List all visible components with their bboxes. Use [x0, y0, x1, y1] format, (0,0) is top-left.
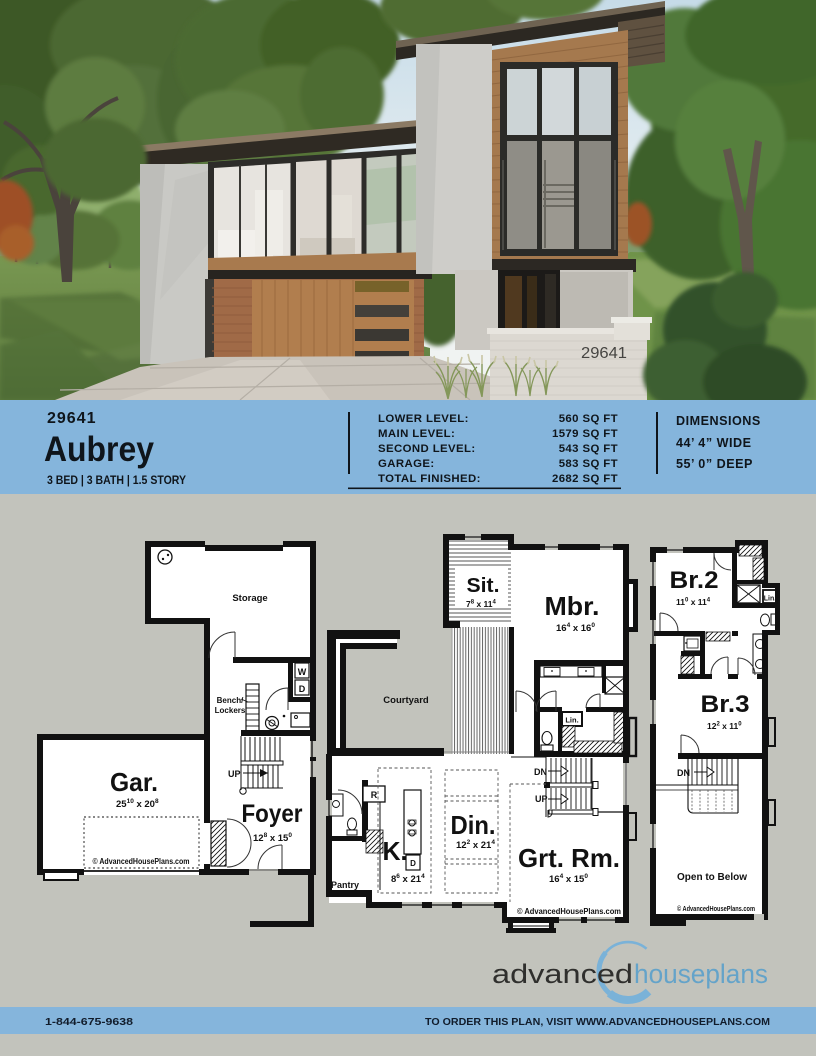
- svg-text:Lockers: Lockers: [215, 706, 246, 715]
- svg-text:Sit.: Sit.: [467, 575, 500, 597]
- svg-text:Storage: Storage: [232, 593, 267, 604]
- svg-text:2682 SQ FT: 2682 SQ FT: [552, 473, 618, 485]
- svg-text:Pantry: Pantry: [331, 880, 359, 890]
- svg-text:Mbr.: Mbr.: [545, 591, 600, 621]
- svg-text:TO ORDER THIS PLAN, VISIT WWW.: TO ORDER THIS PLAN, VISIT WWW.ADVANCEDHO…: [425, 1016, 770, 1028]
- svg-text:Grt. Rm.: Grt. Rm.: [518, 843, 620, 873]
- svg-text:543 SQ FT: 543 SQ FT: [559, 443, 618, 455]
- svg-text:Br.2: Br.2: [670, 567, 719, 594]
- svg-text:© AdvancedHousePlans.com: © AdvancedHousePlans.com: [677, 905, 755, 913]
- svg-text:86 x 214: 86 x 214: [391, 873, 425, 885]
- svg-text:Open to Below: Open to Below: [677, 872, 747, 883]
- svg-text:© AdvancedHousePlans.com: © AdvancedHousePlans.com: [517, 907, 621, 916]
- svg-text:3 BED | 3 BATH | 1.5 STORY: 3 BED | 3 BATH | 1.5 STORY: [47, 473, 186, 487]
- svg-text:GARAGE:: GARAGE:: [378, 458, 435, 470]
- svg-text:© AdvancedHousePlans.com: © AdvancedHousePlans.com: [93, 857, 190, 866]
- svg-text:Din.: Din.: [451, 810, 496, 840]
- svg-text:D: D: [410, 859, 416, 868]
- svg-text:128 x 150: 128 x 150: [253, 832, 292, 844]
- svg-text:W: W: [298, 667, 307, 677]
- svg-text:K.: K.: [383, 836, 408, 866]
- svg-text:Gar.: Gar.: [110, 767, 158, 797]
- svg-text:Lin.: Lin.: [764, 596, 776, 603]
- svg-text:Foyer: Foyer: [242, 800, 303, 828]
- svg-text:UP: UP: [228, 769, 241, 779]
- svg-text:1-844-675-9638: 1-844-675-9638: [45, 1016, 133, 1028]
- svg-text:SECOND LEVEL:: SECOND LEVEL:: [378, 443, 476, 455]
- svg-text:110 x 114: 110 x 114: [676, 597, 711, 607]
- svg-text:UP: UP: [535, 794, 548, 804]
- svg-text:R: R: [371, 790, 378, 800]
- svg-text:DN: DN: [677, 768, 690, 778]
- svg-text:Aubrey: Aubrey: [44, 430, 154, 469]
- svg-text:164 x 150: 164 x 150: [549, 873, 588, 885]
- svg-text:Courtyard: Courtyard: [383, 695, 429, 706]
- svg-text:Lin.: Lin.: [565, 716, 578, 725]
- svg-text:TOTAL FINISHED:: TOTAL FINISHED:: [378, 473, 481, 485]
- svg-text:2510 x 208: 2510 x 208: [116, 798, 159, 810]
- svg-text:122 x 214: 122 x 214: [456, 839, 495, 851]
- svg-text:583 SQ FT: 583 SQ FT: [559, 458, 618, 470]
- svg-text:LOWER LEVEL:: LOWER LEVEL:: [378, 413, 469, 425]
- svg-text:44’ 4” WIDE: 44’ 4” WIDE: [676, 436, 752, 450]
- svg-text:78 x 114: 78 x 114: [466, 599, 497, 609]
- svg-text:55’ 0” DEEP: 55’ 0” DEEP: [676, 457, 753, 471]
- svg-text:560 SQ FT: 560 SQ FT: [559, 413, 618, 425]
- svg-text:MAIN LEVEL:: MAIN LEVEL:: [378, 428, 455, 440]
- svg-text:DN: DN: [534, 767, 547, 777]
- svg-text:164 x 160: 164 x 160: [556, 622, 595, 634]
- svg-text:122 x 110: 122 x 110: [707, 721, 742, 731]
- svg-text:Br.3: Br.3: [701, 691, 750, 718]
- svg-text:29641: 29641: [581, 345, 627, 362]
- svg-text:DIMENSIONS: DIMENSIONS: [676, 414, 761, 428]
- svg-text:houseplans: houseplans: [634, 959, 768, 989]
- svg-text:D: D: [299, 684, 306, 694]
- svg-text:advanced: advanced: [492, 959, 633, 989]
- svg-text:Bench/: Bench/: [217, 696, 244, 705]
- svg-text:29641: 29641: [47, 410, 97, 427]
- svg-text:1579 SQ FT: 1579 SQ FT: [552, 428, 618, 440]
